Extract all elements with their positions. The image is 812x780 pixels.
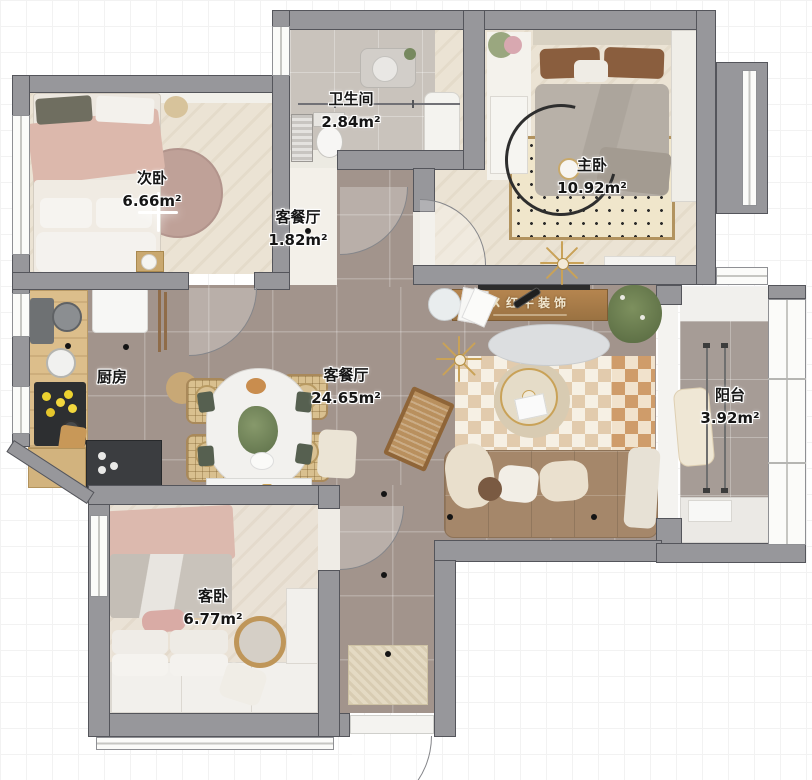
room-label-master-bedroom: 主卧 10.92m²	[557, 158, 627, 196]
table-centerpiece-plant	[238, 406, 278, 454]
brand-subtext-line	[493, 314, 567, 316]
guest-pillow	[112, 654, 168, 676]
brown-pillow	[603, 47, 664, 79]
window-mullion	[768, 378, 806, 380]
chandelier-master-icon	[540, 241, 584, 285]
table-lamp	[141, 254, 157, 270]
oval-side-table	[488, 324, 610, 366]
washing-machine	[688, 500, 732, 522]
downlight-icon	[385, 651, 391, 657]
wood-trim	[164, 292, 167, 350]
room-label-guest-bedroom: 客卧 6.77m²	[183, 589, 242, 627]
downlight-icon	[381, 491, 387, 497]
wall-bathroom-bottom	[337, 150, 473, 170]
teapot	[250, 452, 274, 470]
napkin	[295, 443, 314, 465]
window-guest-south	[96, 737, 334, 750]
window-ac-platform	[742, 70, 757, 206]
wood-trim	[158, 288, 161, 352]
guest-pillow	[170, 654, 228, 676]
window-second-bedroom	[12, 115, 30, 255]
window-kitchen-1	[12, 293, 30, 337]
guest-pillow	[112, 630, 168, 654]
radiator-towel-rack	[291, 114, 313, 162]
window-kitchen-2	[12, 386, 30, 434]
napkin	[197, 391, 216, 413]
sofa-pillow-cream	[539, 459, 590, 502]
sofa-throw-blanket	[623, 447, 661, 529]
guest-door-threshold	[318, 507, 340, 572]
dining-bench-cushion	[317, 429, 357, 479]
pouf	[164, 96, 188, 118]
wall-guest-right-stub	[318, 485, 340, 509]
dark-pillow	[35, 95, 93, 125]
rack-cap	[721, 488, 728, 493]
lemon	[68, 404, 77, 413]
fridge	[92, 287, 148, 333]
wall-second-bedroom-top	[12, 75, 290, 93]
lemon	[42, 392, 51, 401]
rack-cap	[703, 343, 710, 348]
sofa-pillow-brown	[478, 477, 502, 501]
napkin	[197, 445, 214, 466]
guest-cabinet	[286, 588, 318, 664]
wall-second-bedroom-bottom	[12, 272, 189, 290]
washbasin	[372, 56, 398, 82]
downlight-icon	[447, 514, 453, 520]
wall-second-bedroom-bottom-stub	[254, 272, 290, 290]
room-label-bathroom: 卫生间 2.84m²	[321, 92, 380, 130]
window-mullion	[768, 462, 806, 464]
sofa-pillow-white	[496, 464, 540, 504]
window-balcony-north	[716, 267, 768, 285]
master-headboard	[533, 30, 671, 45]
wall-guest-right	[318, 570, 340, 737]
kitchen-sink	[46, 348, 76, 378]
room-label-living-dining: 客餐厅 24.65m²	[311, 368, 381, 406]
dish	[98, 452, 106, 460]
balcony-north-sill	[680, 287, 780, 321]
plant-flower-dot	[640, 315, 645, 320]
wall-east	[696, 10, 716, 285]
floorplan-canvas: 红牛装饰	[0, 0, 812, 780]
door-arc-entry	[352, 736, 432, 780]
downlight-icon	[591, 514, 597, 520]
window-balcony-east	[768, 299, 806, 545]
white-pillow	[95, 96, 154, 125]
lemon	[46, 408, 55, 417]
dish	[98, 466, 106, 474]
partition-tick	[412, 100, 414, 108]
dish	[110, 462, 118, 470]
downlight-icon	[381, 572, 387, 578]
kitchen-counter-dark	[86, 440, 162, 488]
room-label-hallway: 客餐厅 1.82m²	[268, 210, 327, 248]
plant-flower-dot	[620, 295, 625, 300]
white-pillow	[574, 60, 608, 82]
wall-bathroom-right	[463, 10, 485, 170]
wall-north	[278, 10, 716, 30]
wall-corridor-right	[434, 560, 456, 737]
flower-bouquet-pink	[504, 36, 522, 54]
rack-cap	[721, 343, 728, 348]
room-label-kitchen: 厨房	[97, 370, 127, 385]
kitchen-appliance	[30, 298, 54, 344]
cooking-pot	[52, 302, 82, 332]
downlight-icon	[65, 343, 71, 349]
room-label-second-bedroom: 次卧 6.66m²	[122, 171, 181, 209]
wall-south	[88, 713, 350, 737]
bread-plate	[246, 378, 266, 394]
wall-guest-top	[88, 485, 340, 505]
guest-pillow	[170, 630, 228, 654]
downlight-icon	[123, 344, 129, 350]
chandelier-living-icon	[436, 336, 482, 382]
pillow	[40, 198, 92, 228]
plant-small	[404, 48, 416, 60]
wall-balcony-window-top-stub	[768, 285, 806, 299]
entry-door-leaf	[350, 715, 434, 734]
room-label-balcony: 阳台 3.92m²	[700, 388, 759, 426]
round-mirror	[428, 288, 461, 321]
wall-balcony-bottom	[656, 543, 806, 563]
rack-cap	[703, 488, 710, 493]
window-guest-west	[90, 515, 108, 597]
lemon	[64, 390, 73, 399]
window-bathroom	[272, 26, 290, 76]
wall-living-bottom	[434, 540, 662, 562]
lemon	[56, 398, 65, 407]
master-wardrobe	[671, 30, 697, 202]
